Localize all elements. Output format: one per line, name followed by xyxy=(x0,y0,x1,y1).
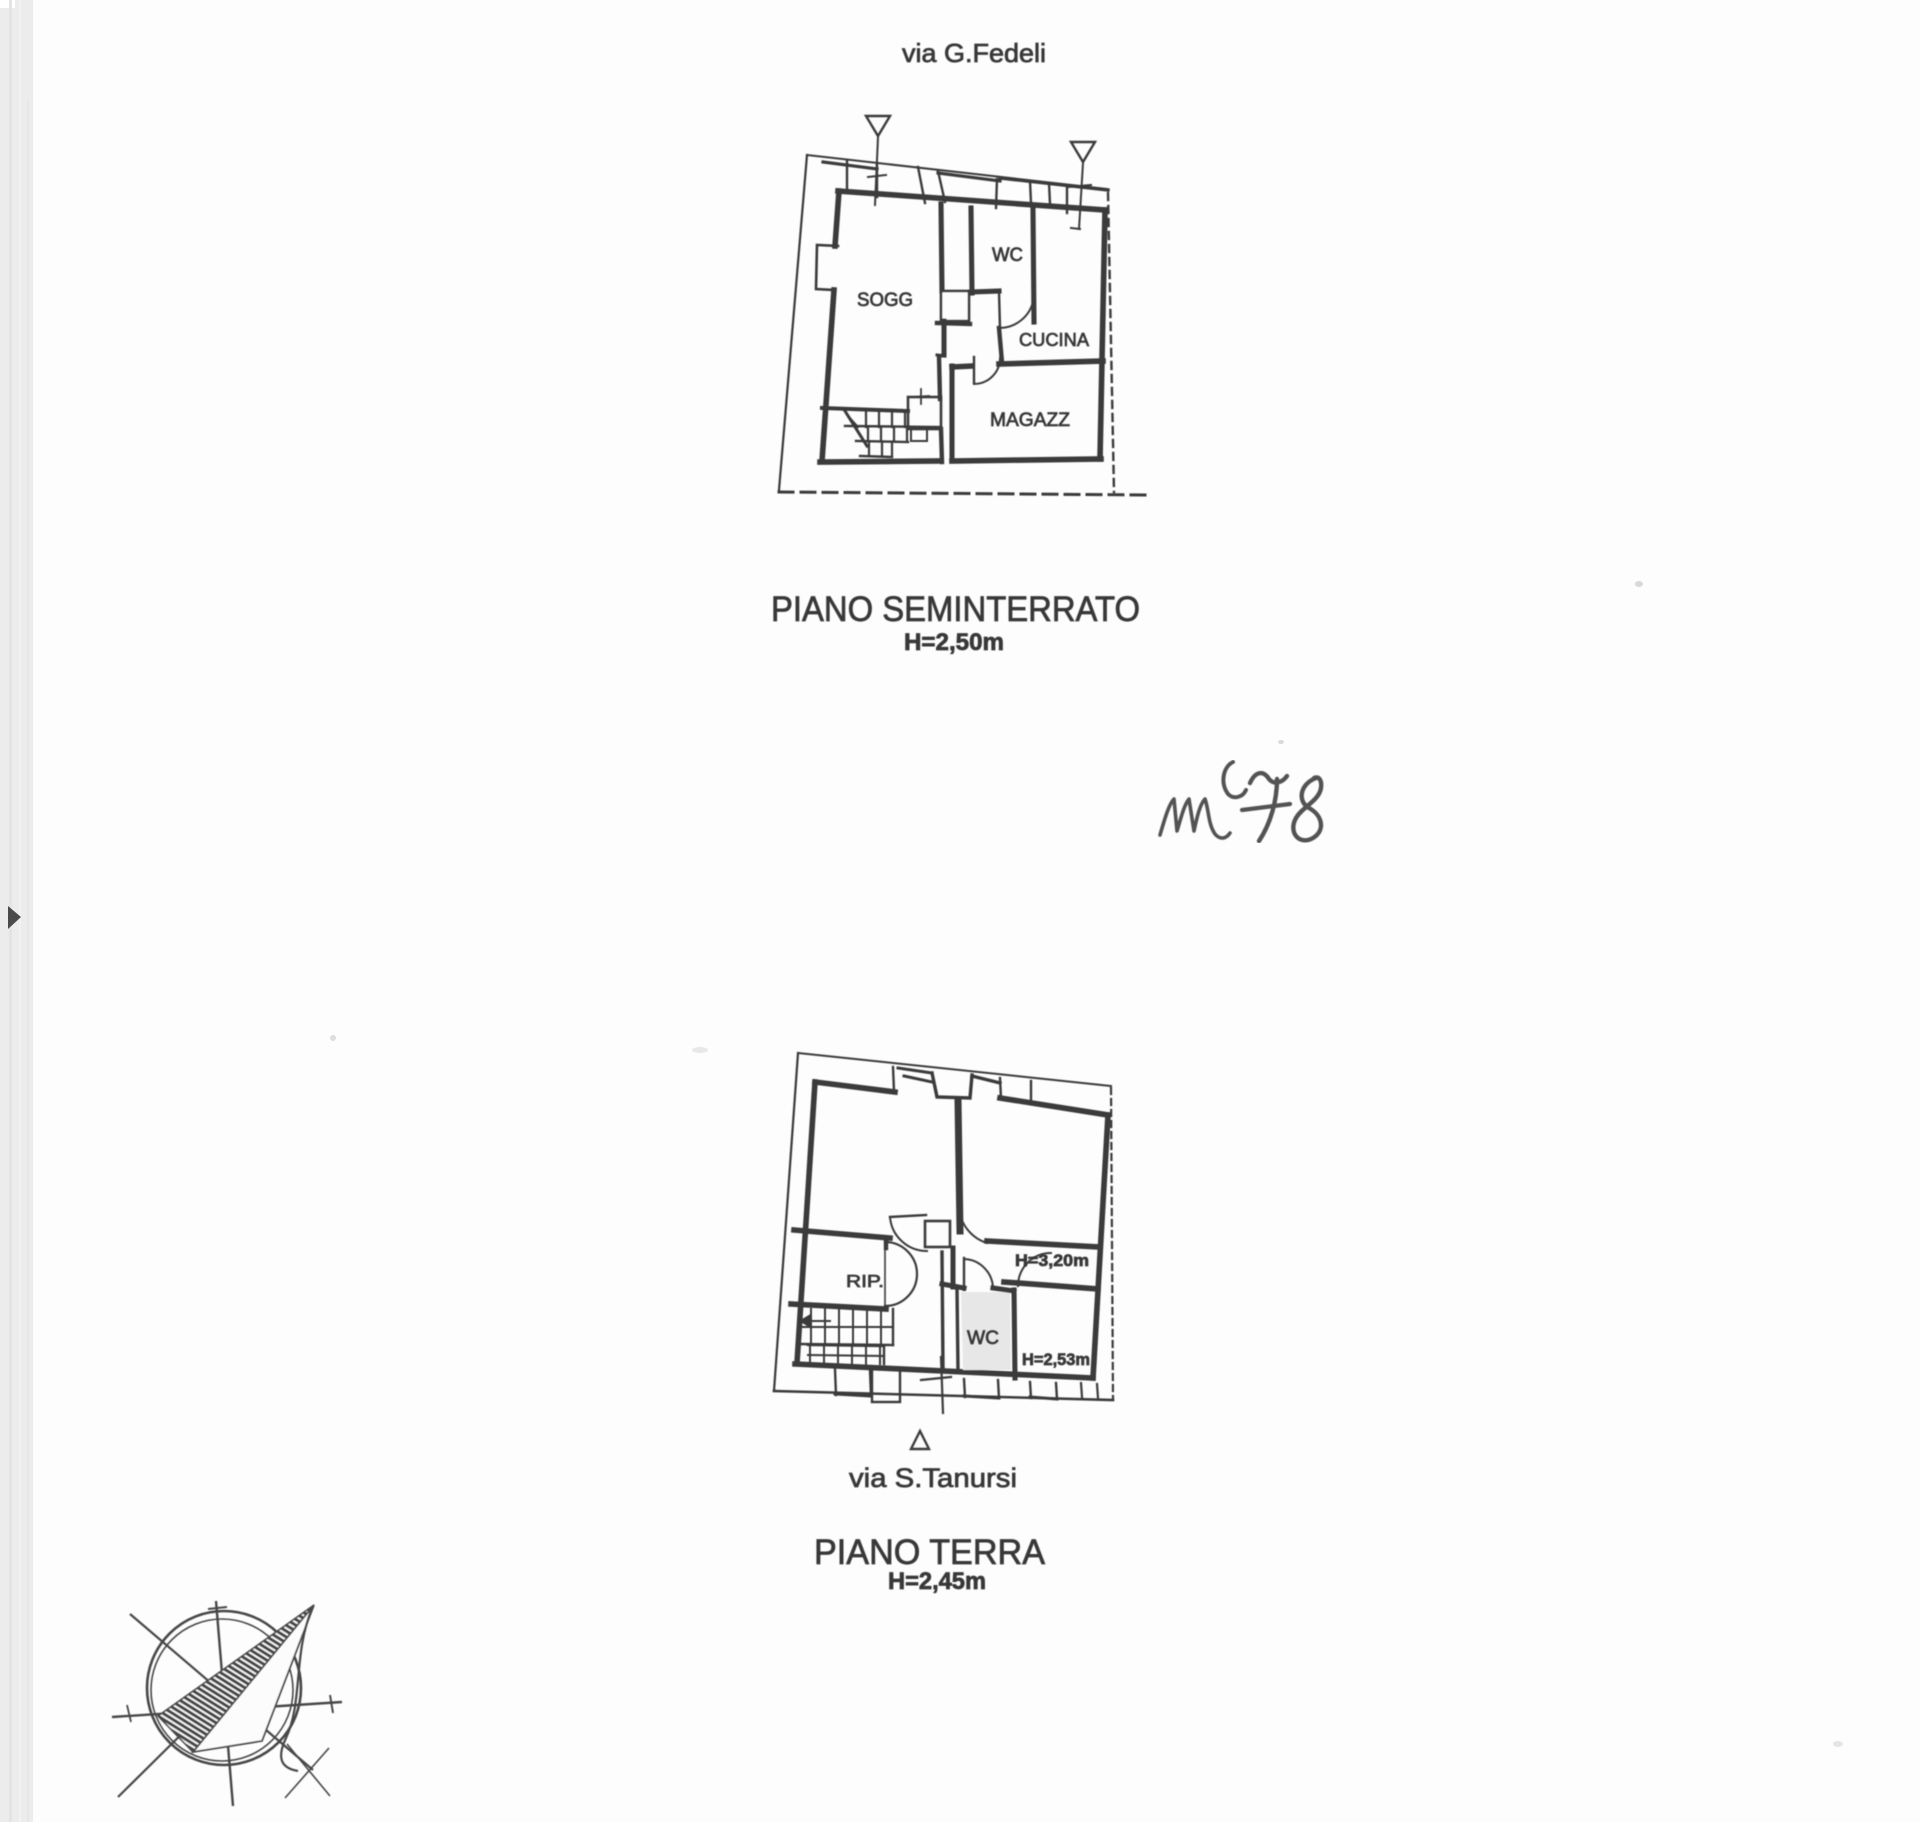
svg-text:via S.Tanursi: via S.Tanursi xyxy=(849,1463,1017,1493)
svg-text:RIP.: RIP. xyxy=(846,1271,884,1291)
svg-text:WC: WC xyxy=(967,1328,999,1349)
svg-text:PIANO TERRA: PIANO TERRA xyxy=(814,1533,1046,1572)
svg-text:PIANO SEMINTERRATO: PIANO SEMINTERRATO xyxy=(771,590,1140,629)
svg-text:WC: WC xyxy=(992,245,1023,266)
svg-text:SOGG: SOGG xyxy=(857,290,913,311)
svg-text:via G.Fedeli: via G.Fedeli xyxy=(902,38,1046,68)
svg-text:H=2,45m: H=2,45m xyxy=(888,1568,986,1595)
svg-text:H=3,20m: H=3,20m xyxy=(1015,1251,1089,1270)
svg-text:H=2,53m: H=2,53m xyxy=(1022,1350,1090,1369)
svg-text:H=2,50m: H=2,50m xyxy=(904,629,1004,656)
svg-text:MAGAZZ: MAGAZZ xyxy=(990,410,1070,431)
svg-text:CUCINA: CUCINA xyxy=(1019,329,1090,350)
